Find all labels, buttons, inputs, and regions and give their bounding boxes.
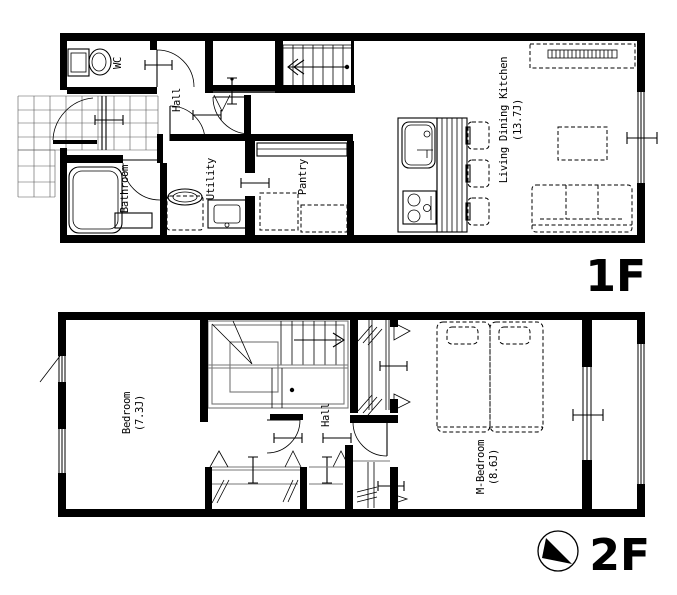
door-hall-closet: [267, 420, 300, 453]
hanger-icon: [358, 325, 382, 345]
sofa: [532, 185, 632, 232]
window-mbedroom-balcony: [573, 367, 603, 460]
opening-markers-2f: [274, 433, 351, 443]
washing-machine-icon: [167, 189, 203, 230]
hanger-icon: [358, 395, 382, 415]
bed: [437, 322, 543, 432]
stove-icon: [403, 191, 436, 224]
label-bedroom-size: (7.3J): [134, 395, 146, 431]
north-arrow-icon: [538, 531, 578, 571]
dining-table: [558, 127, 607, 160]
label-wc: WC: [112, 57, 124, 69]
walls-2f: [58, 312, 645, 517]
kitchen-sink-icon: [402, 122, 435, 168]
tv-board: [530, 44, 635, 68]
label-hall-1f: Hall: [171, 88, 183, 112]
counter-stool: [466, 160, 489, 187]
door-wc: [157, 50, 194, 87]
label-ldk: Living Dining Kitchen: [498, 57, 510, 183]
counter-stool: [466, 122, 489, 149]
label-bedroom: Bedroom: [121, 392, 133, 434]
label-mbedroom-size: (8.6J): [488, 449, 500, 485]
door-mbedroom: [353, 422, 387, 456]
window-bedroom-small: [40, 356, 65, 382]
label-hall-2f: Hall: [320, 403, 332, 427]
floor-plan-page: WC Hall Bathroom Utility Pantry Living D…: [0, 0, 677, 595]
closet-bottom-right: [353, 461, 407, 508]
label-pantry: Pantry: [297, 159, 309, 195]
toilet-icon: [68, 49, 111, 76]
label-mbedroom: M-Bedroom: [475, 440, 487, 494]
floor-label-2f: 2F: [589, 530, 650, 581]
window-bedroom-large: [59, 429, 65, 473]
opening-markers-1f: [95, 60, 657, 188]
entrance-tiles: [18, 96, 158, 197]
stairs-1f: [283, 45, 352, 85]
floor-label-1f: 1F: [585, 251, 646, 302]
closet-bottom-left: [210, 451, 349, 503]
bathtub-icon: [69, 167, 152, 233]
vanity-sink-icon: [208, 200, 246, 228]
floor-plan-drawing: WC Hall Bathroom Utility Pantry Living D…: [0, 0, 677, 595]
bar-counter: [437, 118, 467, 232]
floor-plan-1f: WC Hall Bathroom Utility Pantry Living D…: [18, 33, 657, 302]
window-balcony-outer: [638, 344, 644, 484]
bed: [437, 322, 490, 432]
label-ldk-size: (13.7J): [512, 99, 524, 141]
label-utility: Utility: [205, 158, 217, 200]
closet-tall: [358, 320, 410, 415]
floor-plan-2f: Bedroom (7.3J) Hall M-Bedroom (8.6J) 2F: [40, 312, 650, 581]
counter-stool: [466, 198, 489, 225]
label-bathroom: Bathroom: [119, 165, 131, 213]
kitchen-counter: [398, 118, 489, 232]
stairs-2f: [208, 321, 348, 408]
